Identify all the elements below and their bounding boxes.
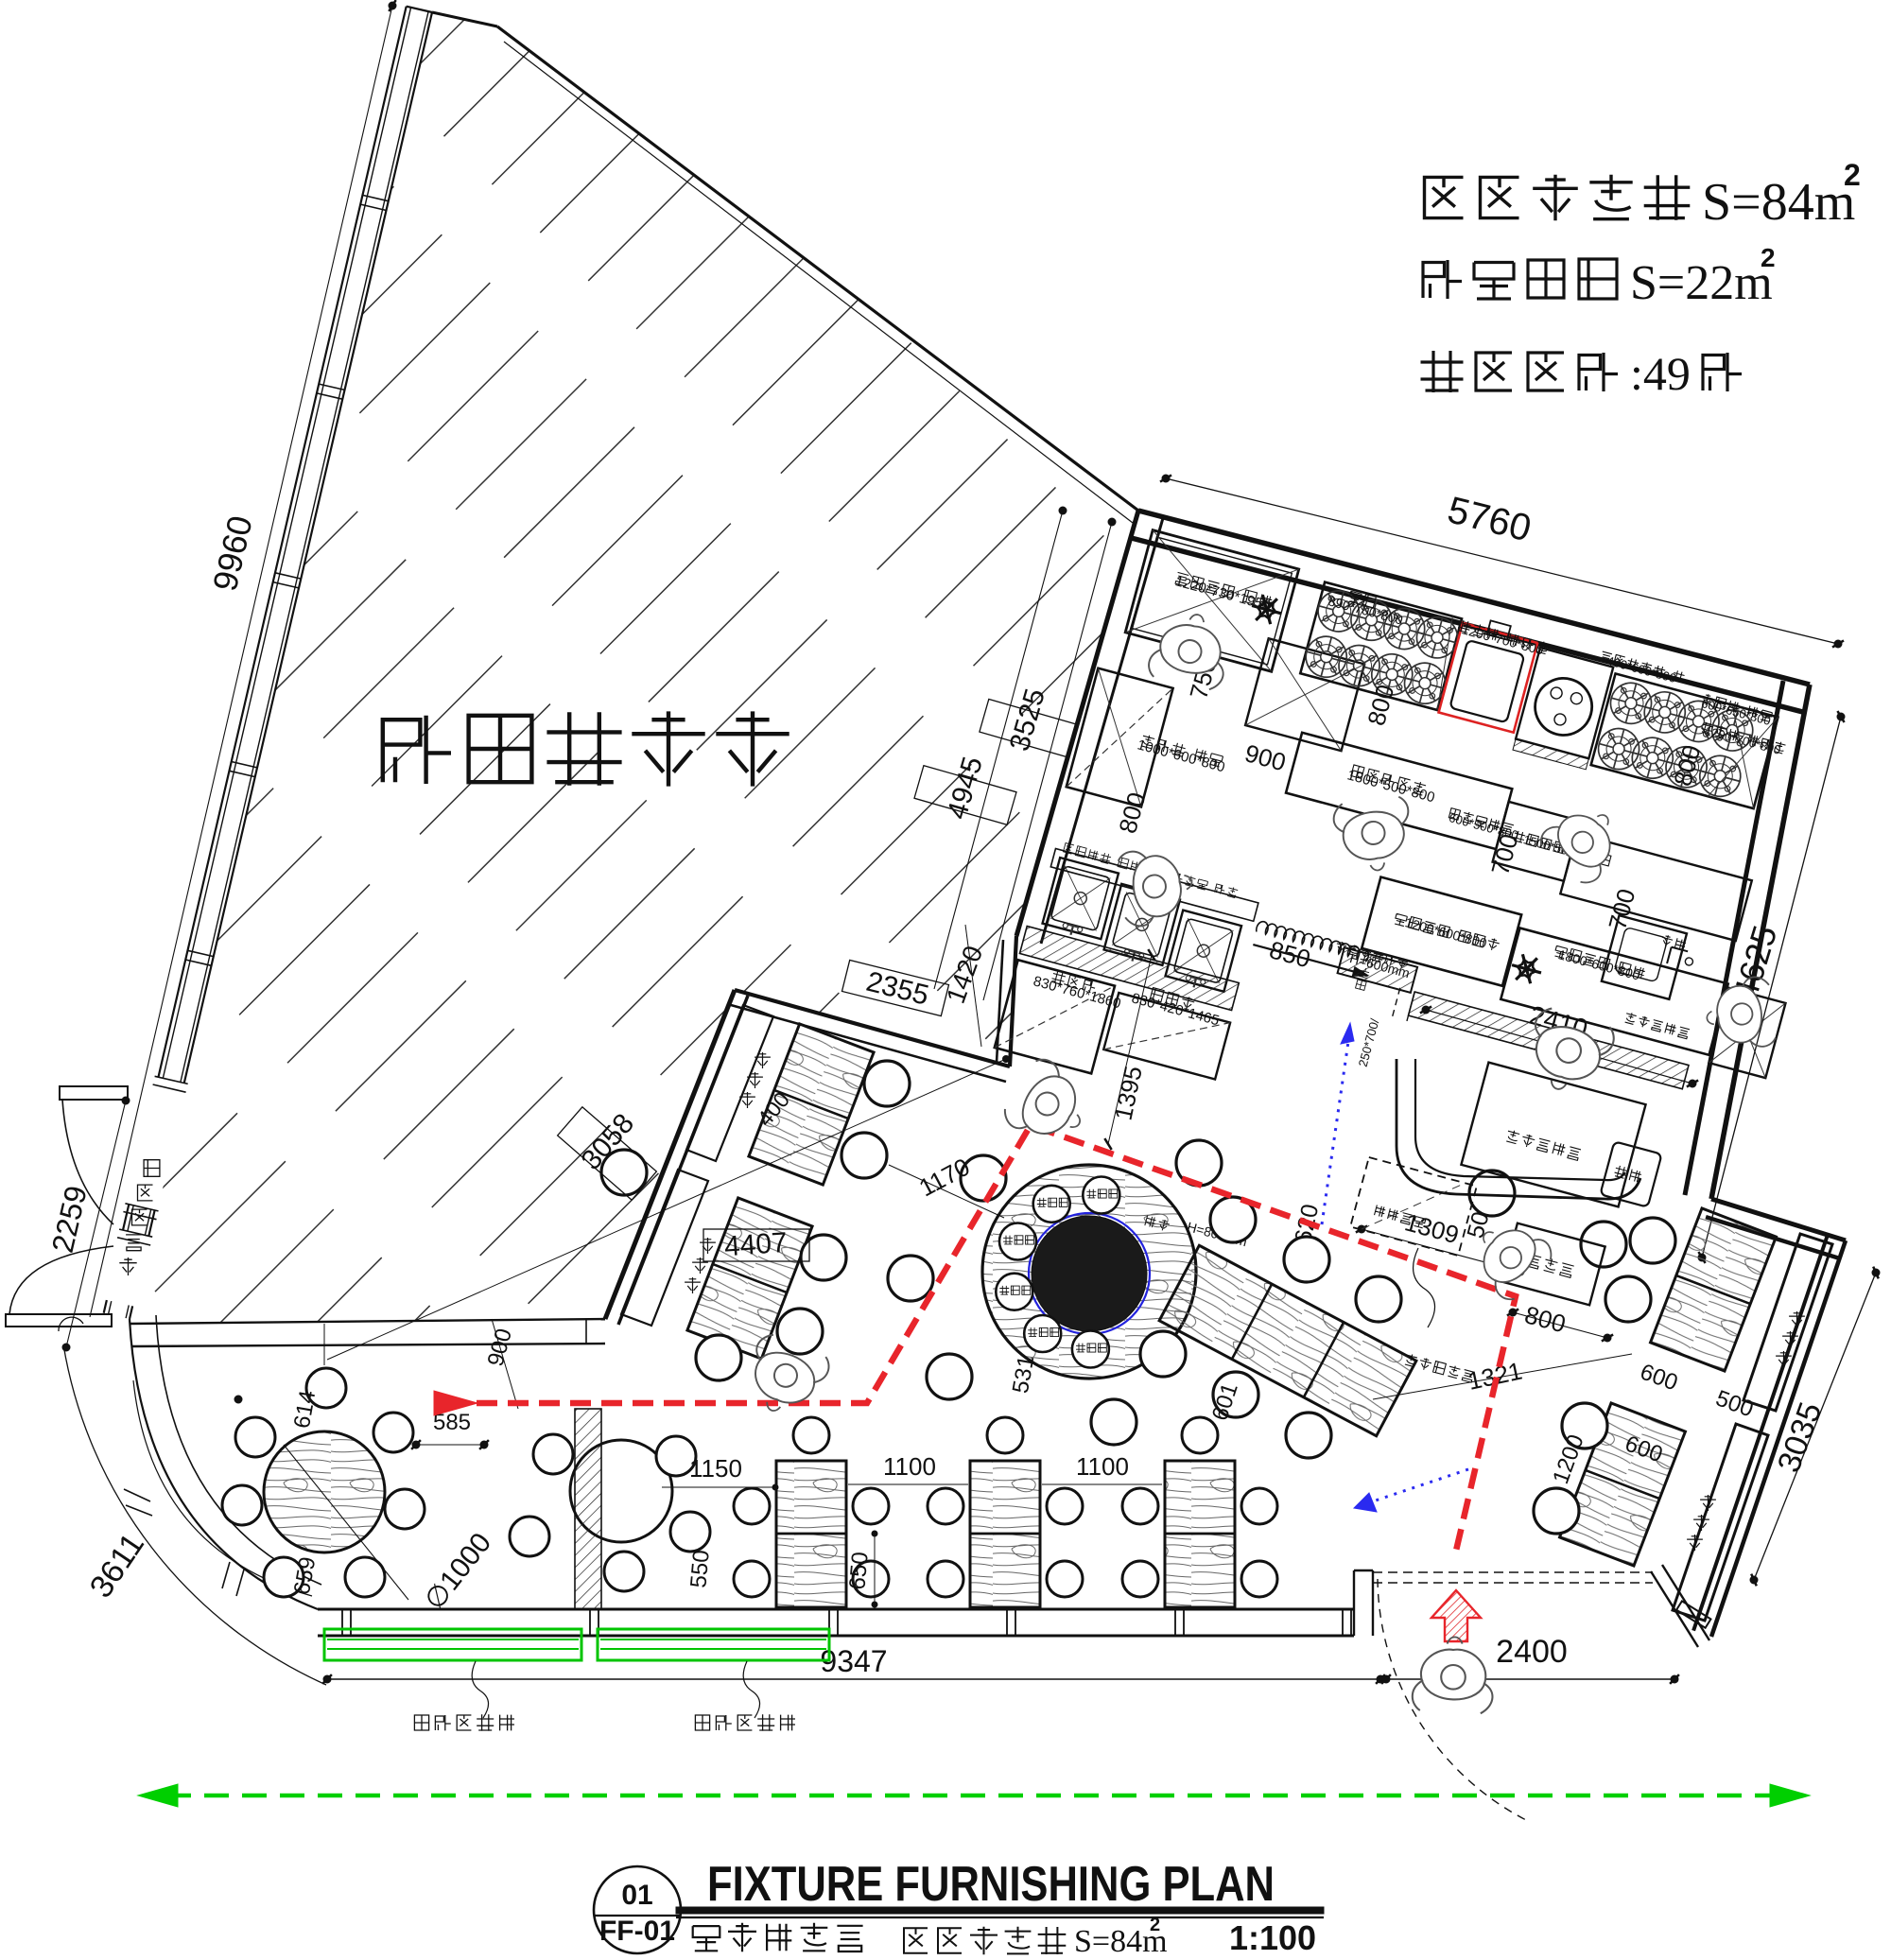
svg-text:2400: 2400 xyxy=(1496,1634,1568,1670)
svg-text:4407: 4407 xyxy=(723,1227,789,1263)
svg-text:2: 2 xyxy=(1844,158,1861,192)
svg-text:FF-01: FF-01 xyxy=(599,1916,675,1947)
svg-text:1150: 1150 xyxy=(689,1454,742,1483)
svg-text:2: 2 xyxy=(1150,1915,1160,1935)
svg-text:1:100: 1:100 xyxy=(1229,1918,1316,1957)
svg-text:1100: 1100 xyxy=(1076,1452,1129,1481)
svg-text:S=22m: S=22m xyxy=(1630,256,1773,310)
svg-text:FIXTURE FURNISHING PLAN: FIXTURE FURNISHING PLAN xyxy=(707,1857,1275,1912)
svg-text:2: 2 xyxy=(1761,243,1776,272)
svg-text:S=84m: S=84m xyxy=(1702,173,1855,232)
svg-text::49: :49 xyxy=(1630,347,1691,400)
svg-text:650: 650 xyxy=(844,1551,873,1590)
svg-text:01: 01 xyxy=(621,1880,652,1911)
svg-text:550: 550 xyxy=(685,1549,714,1588)
svg-text:1100: 1100 xyxy=(883,1452,936,1481)
